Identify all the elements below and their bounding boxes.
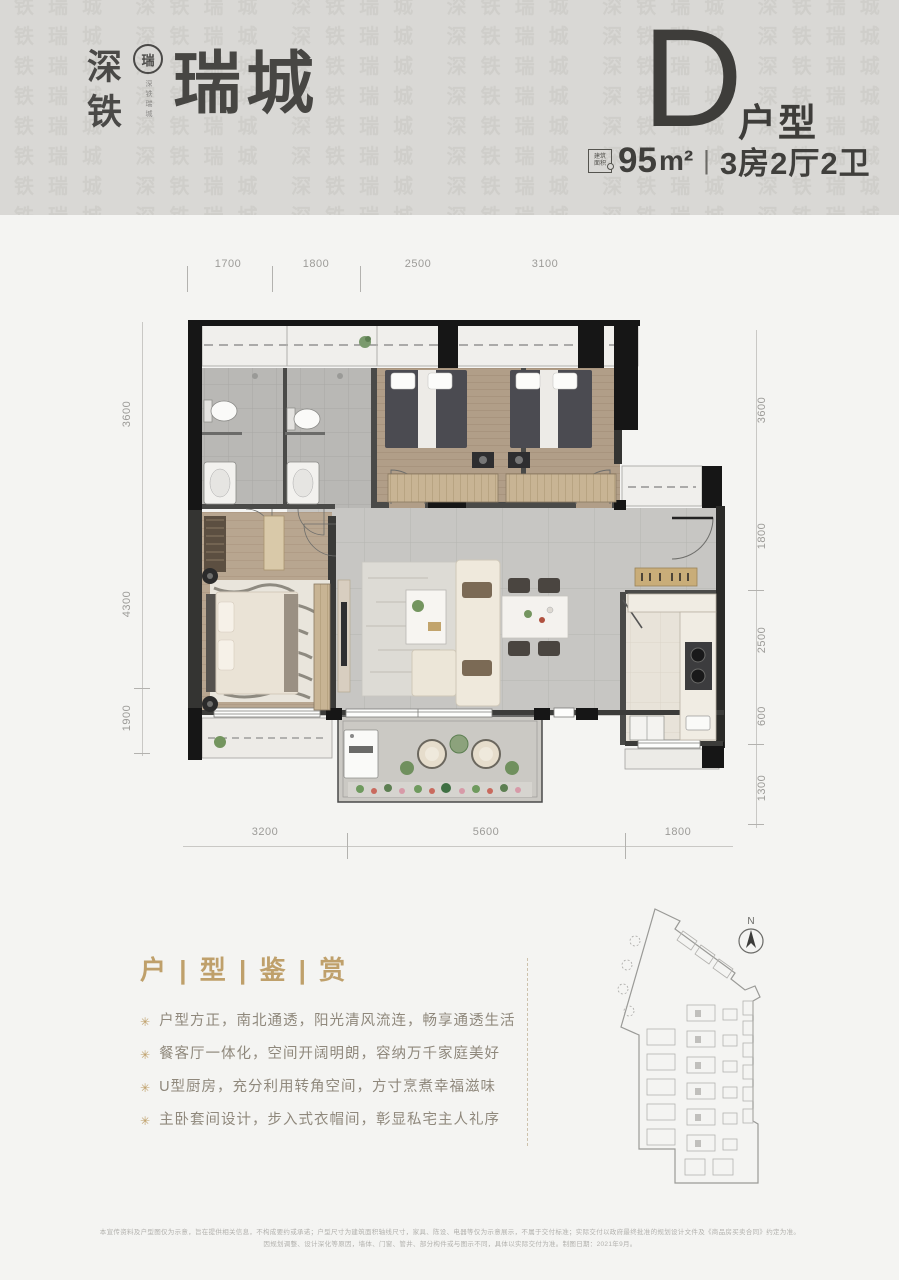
brand-seal: 瑞 深铁瑞城 — [133, 44, 163, 120]
north-compass: N — [739, 916, 763, 953]
header-band: 深铁瑞城 深铁瑞城 深铁瑞城 深铁瑞城 深铁瑞城 深铁瑞城 深铁瑞城 深铁瑞城 … — [0, 0, 899, 215]
unit-type-letter: D — [642, 8, 743, 148]
bullet-text: 餐客厅一体化，空间开阔明朗，容纳万千家庭美好 — [159, 1046, 500, 1062]
dim-tick — [748, 824, 764, 825]
appreciation-title: 户 | 型 | 鉴 | 赏 — [140, 950, 520, 987]
list-item: ✳ 户型方正，南北通透，阳光清风流连，畅享通透生活 — [140, 1013, 520, 1029]
asterisk-icon: ✳ — [140, 1048, 150, 1062]
dim-tick — [347, 833, 348, 859]
entry-furniture — [635, 568, 697, 586]
brand-vertical-text: 深铁 — [84, 48, 119, 138]
flower-bed — [348, 782, 532, 797]
dim-label: 3200 — [235, 826, 295, 838]
bullet-text: U型厨房，充分利用转角空间，方寸烹煮幸福滋味 — [159, 1079, 496, 1095]
dim-label: 600 — [756, 686, 768, 746]
dim-tick — [272, 266, 273, 292]
list-item: ✳ U型厨房，充分利用转角空间，方寸烹煮幸福滋味 — [140, 1079, 520, 1095]
north-label: N — [747, 916, 754, 927]
area-value: 95 — [618, 141, 657, 181]
disclaimer-line1: 本宣传资料及户型图仅为示意，旨在提供相关信息，不构成要约或承诺；户型尺寸为建筑面… — [70, 1226, 830, 1236]
list-item: ✳ 主卧套间设计，步入式衣帽间，彰显私宅主人礼序 — [140, 1112, 520, 1128]
dim-tick — [748, 590, 764, 591]
dim-label: 5600 — [456, 826, 516, 838]
disclaimer-line2: 因规划调整、设计深化等原因，墙体、门窗、管井、部分构件或与图示不同，具体以实际交… — [70, 1238, 830, 1248]
unit-spec-row: 建筑 面积 95 m² | 3房2厅2卫 — [588, 138, 871, 183]
dim-label: 1300 — [756, 758, 768, 818]
list-item: ✳ 餐客厅一体化，空间开阔明朗，容纳万千家庭美好 — [140, 1046, 520, 1062]
dim-label: 1800 — [286, 258, 346, 270]
dim-line — [183, 846, 733, 847]
room-spec: 3房2厅2卫 — [720, 138, 871, 183]
dim-label: 3100 — [515, 258, 575, 270]
stamp-line1: 建筑 — [594, 154, 606, 161]
dim-label: 1800 — [648, 826, 708, 838]
dim-label: 3600 — [756, 380, 768, 440]
asterisk-icon: ✳ — [140, 1015, 150, 1029]
area-stamp-icon: 建筑 面积 — [588, 149, 612, 173]
stamp-line2: 面积 — [594, 161, 606, 168]
dim-label: 1900 — [121, 688, 133, 748]
brand-name: 瑞城 — [173, 50, 319, 118]
asterisk-icon: ✳ — [140, 1081, 150, 1095]
appreciation-section: 户 | 型 | 鉴 | 赏 ✳ 户型方正，南北通透，阳光清风流连，畅享通透生活 … — [140, 950, 520, 1145]
dim-line — [142, 322, 143, 756]
siteplan-keymap: N — [585, 893, 795, 1208]
dim-label: 2500 — [388, 258, 448, 270]
dim-tick — [187, 266, 188, 292]
brand-logo: 深铁 瑞 深铁瑞城 瑞城 — [84, 42, 319, 138]
bullet-text: 主卧套间设计，步入式衣帽间，彰显私宅主人礼序 — [159, 1112, 500, 1128]
dim-tick — [360, 266, 361, 292]
dim-label: 3600 — [121, 384, 133, 444]
dashed-divider — [527, 958, 528, 1146]
dim-tick — [134, 753, 150, 754]
asterisk-icon: ✳ — [140, 1114, 150, 1128]
dim-label: 1800 — [756, 506, 768, 566]
seal-icon: 瑞 — [133, 44, 163, 74]
dim-label: 2500 — [756, 610, 768, 670]
bullet-text: 户型方正，南北通透，阳光清风流连，畅享通透生活 — [159, 1013, 516, 1029]
poster-page: 深铁瑞城 深铁瑞城 深铁瑞城 深铁瑞城 深铁瑞城 深铁瑞城 深铁瑞城 深铁瑞城 … — [0, 0, 899, 1280]
dim-tick — [625, 833, 626, 859]
floorplan-drawing — [180, 312, 740, 812]
spec-separator: | — [703, 145, 710, 176]
dim-label: 4300 — [121, 574, 133, 634]
seal-subtext: 深铁瑞城 — [143, 80, 153, 120]
dim-tick — [134, 688, 150, 689]
dim-label: 1700 — [198, 258, 258, 270]
area-unit: m² — [659, 145, 693, 177]
